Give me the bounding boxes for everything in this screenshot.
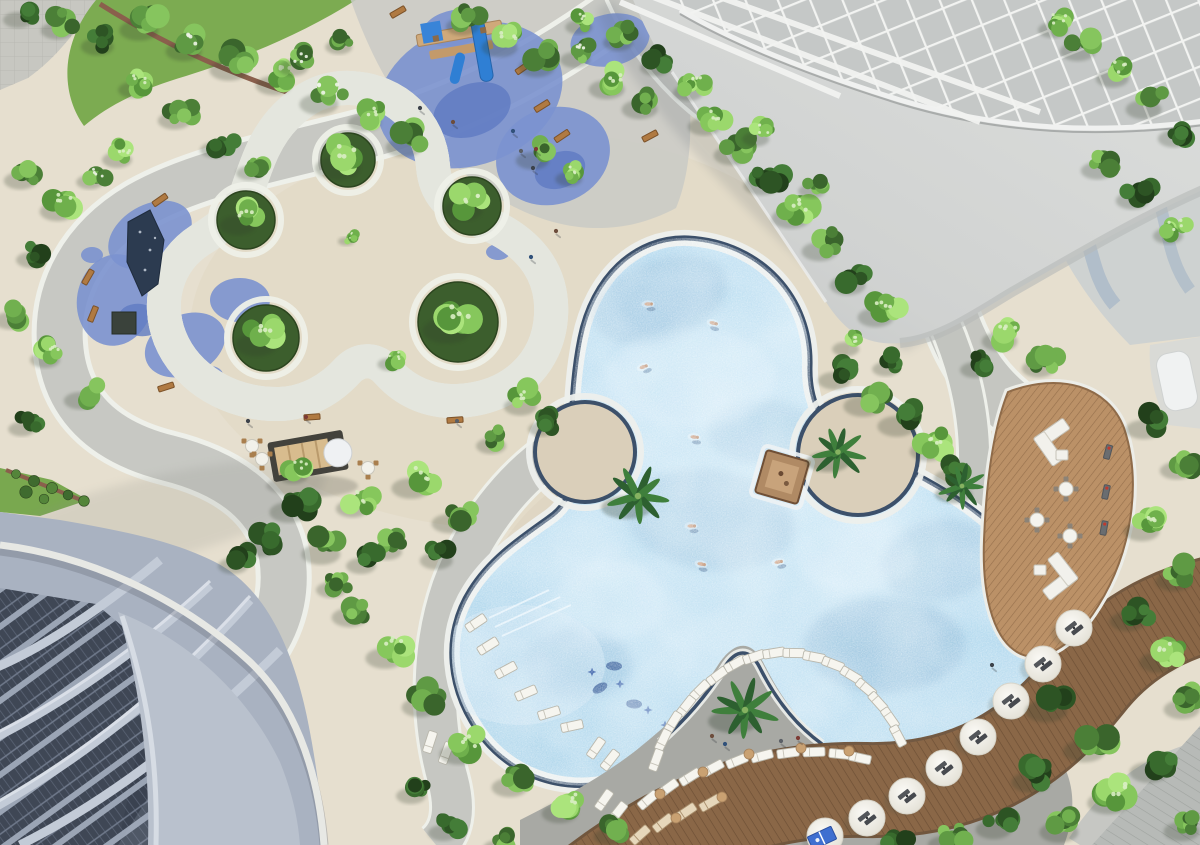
leaf-highlight xyxy=(258,328,262,332)
tree-canopy xyxy=(640,92,651,103)
tree-canopy xyxy=(883,346,900,363)
leaf-highlight xyxy=(500,35,504,39)
tree-canopy xyxy=(500,832,511,843)
leaf-highlight xyxy=(268,328,272,332)
person-dot xyxy=(511,129,515,133)
leaf-highlight xyxy=(797,198,801,202)
leaf-highlight xyxy=(998,325,1002,329)
tree-canopy xyxy=(307,525,329,547)
person-dot xyxy=(519,149,523,153)
tree-canopy xyxy=(538,42,555,59)
tree-canopy xyxy=(359,501,373,515)
palm-crown xyxy=(635,493,641,499)
cafe-chair xyxy=(1064,497,1069,502)
leaf-highlight xyxy=(53,345,56,348)
tree-canopy xyxy=(57,8,67,18)
cafe-chair xyxy=(1025,518,1030,523)
leaf-highlight xyxy=(305,462,308,465)
cafe-table xyxy=(1030,513,1044,527)
leaf-highlight xyxy=(464,200,468,204)
leaf-highlight xyxy=(571,796,575,800)
cafe-chair xyxy=(1045,518,1050,523)
person-dot xyxy=(451,120,455,124)
wood-chair xyxy=(268,452,273,457)
tree-canopy xyxy=(1165,753,1178,766)
round-table xyxy=(246,440,259,453)
wood-chair xyxy=(242,439,247,444)
tree-canopy xyxy=(356,599,368,611)
tree-canopy xyxy=(1138,180,1154,196)
leaf-highlight xyxy=(582,46,585,49)
tree-canopy xyxy=(434,542,446,554)
tree-canopy xyxy=(1139,604,1150,615)
tree-canopy xyxy=(1185,823,1197,835)
leaf-highlight xyxy=(293,60,296,63)
leaf-highlight xyxy=(711,116,715,120)
tree-canopy xyxy=(226,133,242,149)
tree-canopy xyxy=(606,27,623,44)
tree-canopy xyxy=(1155,86,1168,99)
tree-canopy xyxy=(565,172,574,181)
leaf-highlight xyxy=(1123,785,1127,789)
leaf-highlight xyxy=(709,110,713,114)
umbrella-pole xyxy=(1073,627,1075,629)
leaf-highlight xyxy=(1111,792,1115,796)
leaf-highlight xyxy=(259,324,263,328)
leaf-highlight xyxy=(520,397,524,401)
umbrella-pole xyxy=(866,817,868,819)
leaf-highlight xyxy=(758,124,761,127)
park-bench xyxy=(447,417,463,424)
wood-chair xyxy=(260,466,265,471)
tree-canopy xyxy=(89,377,105,393)
tree-canopy xyxy=(813,174,828,189)
leaf-highlight xyxy=(574,793,578,797)
play-cube xyxy=(112,312,136,334)
tree-canopy xyxy=(677,82,692,97)
tree-canopy xyxy=(409,471,430,492)
leaf-highlight xyxy=(853,336,856,339)
tree-canopy xyxy=(1080,27,1102,49)
leaf-highlight xyxy=(1013,326,1017,330)
person-dot xyxy=(723,742,727,746)
cafe-chair xyxy=(1035,528,1040,533)
leaf-highlight xyxy=(1117,70,1121,74)
leaf-highlight xyxy=(361,499,365,503)
tree-canopy xyxy=(839,369,850,380)
ottoman xyxy=(1056,450,1068,460)
wood-chair xyxy=(258,439,263,444)
tree-canopy xyxy=(641,51,660,70)
leaf-highlight xyxy=(608,76,612,80)
person-dot xyxy=(990,663,994,667)
side-table xyxy=(698,767,708,777)
tree-canopy xyxy=(1179,456,1198,475)
ottoman xyxy=(1034,565,1046,575)
side-table xyxy=(744,749,754,759)
tree-canopy xyxy=(226,550,246,570)
tree-canopy xyxy=(297,45,313,61)
leaf-highlight xyxy=(522,390,526,394)
tree-canopy xyxy=(640,103,651,114)
leaf-highlight xyxy=(450,314,455,319)
leaf-highlight xyxy=(1113,60,1117,64)
tree-canopy xyxy=(177,108,191,122)
round-table xyxy=(362,462,375,475)
tree-canopy xyxy=(1074,725,1099,750)
leaf-highlight xyxy=(424,476,428,480)
leaf-highlight xyxy=(611,79,615,83)
leaf-highlight xyxy=(1064,14,1067,17)
tree-canopy xyxy=(461,8,476,23)
leaf-highlight xyxy=(56,348,59,351)
tree-canopy xyxy=(209,139,222,152)
leaf-highlight xyxy=(397,351,400,354)
tree-canopy xyxy=(388,532,404,548)
person-dot xyxy=(531,166,535,170)
tree-canopy xyxy=(358,553,371,566)
tree-canopy xyxy=(513,768,535,790)
tree-canopy xyxy=(1045,816,1064,835)
tree-canopy xyxy=(606,820,626,840)
palm-crown xyxy=(742,707,748,713)
leaf-highlight xyxy=(193,42,197,46)
leaf-highlight xyxy=(391,636,395,640)
leaf-highlight xyxy=(466,314,471,319)
umbrella-pole xyxy=(943,767,945,769)
leaf-highlight xyxy=(1116,792,1120,796)
leaf-highlight xyxy=(69,196,73,200)
leaf-highlight xyxy=(570,799,574,803)
leaf-highlight xyxy=(250,210,254,214)
tree-canopy xyxy=(493,424,504,435)
cafe-chair xyxy=(1068,544,1073,549)
leaf-highlight xyxy=(1162,648,1166,652)
aerial-resort-render xyxy=(0,0,1200,845)
leaf-highlight xyxy=(1168,642,1172,646)
tree-canopy xyxy=(436,813,450,827)
leaf-highlight xyxy=(467,734,471,738)
leaf-highlight xyxy=(101,175,104,178)
leaf-highlight xyxy=(263,328,267,332)
bush xyxy=(63,490,73,500)
tree-canopy xyxy=(752,167,763,178)
umbrella-pole xyxy=(977,736,979,738)
leaf-highlight xyxy=(1147,516,1151,520)
tree-canopy xyxy=(30,252,40,262)
tree-canopy xyxy=(1121,605,1136,620)
leaf-highlight xyxy=(1180,224,1183,227)
leaf-highlight xyxy=(463,737,467,741)
leaf-highlight xyxy=(132,74,135,77)
side-table xyxy=(717,792,727,802)
leaf-highlight xyxy=(374,113,378,117)
leaf-highlight xyxy=(352,147,357,152)
leaf-highlight xyxy=(118,150,121,153)
leaf-highlight xyxy=(349,237,351,239)
bush xyxy=(46,482,57,493)
bush xyxy=(28,475,39,486)
leaf-highlight xyxy=(804,208,808,212)
tree-canopy xyxy=(835,271,858,294)
leaf-highlight xyxy=(186,33,190,37)
leaf-highlight xyxy=(879,300,883,304)
leaf-highlight xyxy=(499,31,503,35)
tree-canopy xyxy=(501,773,515,787)
leaf-highlight xyxy=(758,131,761,134)
leaf-highlight xyxy=(1052,21,1055,24)
leaf-highlight xyxy=(884,304,888,308)
tree-canopy xyxy=(620,20,634,34)
leaf-highlight xyxy=(1052,13,1055,16)
person-dot xyxy=(710,734,714,738)
tree-canopy xyxy=(1150,410,1164,424)
leaf-highlight xyxy=(305,55,308,58)
cafe-chair xyxy=(1064,477,1069,482)
wood-chair xyxy=(252,452,257,457)
bush xyxy=(20,486,32,498)
tree-canopy xyxy=(826,226,838,238)
leaf-highlight xyxy=(414,466,418,470)
tree-canopy xyxy=(146,4,170,28)
leaf-highlight xyxy=(699,76,702,79)
tree-canopy xyxy=(390,121,413,144)
cafe-chair xyxy=(1074,487,1079,492)
wood-chair xyxy=(366,475,371,480)
play-tower xyxy=(420,21,443,44)
tree-canopy xyxy=(993,322,1015,344)
tree-canopy xyxy=(1064,34,1081,51)
tree-canopy xyxy=(1169,652,1185,668)
leaf-highlight xyxy=(300,467,303,470)
person-dot xyxy=(554,229,558,233)
leaf-highlight xyxy=(56,199,60,203)
tree-canopy xyxy=(449,818,463,832)
tree-canopy xyxy=(1035,345,1056,366)
leaf-highlight xyxy=(300,460,303,463)
leaf-highlight xyxy=(717,117,721,121)
leaf-highlight xyxy=(1123,62,1127,66)
leaf-highlight xyxy=(695,76,698,79)
leaf-highlight xyxy=(449,304,454,309)
tree-canopy xyxy=(96,25,109,38)
leaf-highlight xyxy=(126,151,129,154)
leaf-highlight xyxy=(928,437,932,441)
tree-canopy xyxy=(760,124,773,137)
leaf-highlight xyxy=(476,194,480,198)
leaf-highlight xyxy=(691,77,694,80)
tree-canopy xyxy=(30,421,41,432)
leaf-highlight xyxy=(238,214,242,218)
tree-canopy xyxy=(264,318,285,339)
person-dot xyxy=(304,415,308,419)
bush xyxy=(79,496,90,507)
leaf-highlight xyxy=(514,36,518,40)
cafe-chair xyxy=(1035,508,1040,513)
leaf-highlight xyxy=(888,305,892,309)
tree-canopy xyxy=(342,582,353,593)
cafe-chair xyxy=(1058,534,1063,539)
person-dot xyxy=(246,419,250,423)
leaf-highlight xyxy=(582,15,585,18)
leaf-highlight xyxy=(350,233,352,235)
tree-canopy xyxy=(244,162,259,177)
tree-canopy xyxy=(332,29,347,44)
person-dot xyxy=(796,736,800,740)
tree-canopy xyxy=(1185,810,1200,825)
tree-canopy xyxy=(819,244,833,258)
leaf-highlight xyxy=(399,639,403,643)
leaf-highlight xyxy=(569,166,572,169)
tree-canopy xyxy=(411,135,428,152)
cafe-table xyxy=(1059,482,1073,496)
person-dot xyxy=(418,106,422,110)
tree-canopy xyxy=(394,643,406,655)
tree-canopy xyxy=(337,88,349,100)
tree-canopy xyxy=(281,495,303,517)
tree-canopy xyxy=(982,815,994,827)
side-table xyxy=(671,813,681,823)
leaf-highlight xyxy=(337,153,342,158)
tree-canopy xyxy=(450,510,472,532)
person-dot xyxy=(455,419,459,423)
tree-canopy xyxy=(262,531,280,549)
tree-canopy xyxy=(4,299,22,317)
tree-canopy xyxy=(329,577,343,591)
umbrella-pole xyxy=(1010,700,1012,702)
tree-canopy xyxy=(346,608,357,619)
tree-canopy xyxy=(96,36,108,48)
tree-canopy xyxy=(351,235,358,242)
wood-chair xyxy=(374,461,379,466)
tree-canopy xyxy=(1172,692,1185,705)
tree-canopy xyxy=(64,19,80,35)
leaf-highlight xyxy=(619,78,623,82)
tree-canopy xyxy=(96,169,113,186)
tree-canopy xyxy=(21,3,35,17)
leaf-highlight xyxy=(1179,219,1182,222)
leaf-highlight xyxy=(56,193,60,197)
tree-canopy xyxy=(970,351,981,362)
aerial-render-stage xyxy=(0,0,1200,845)
tree-canopy xyxy=(239,199,258,218)
leaf-highlight xyxy=(573,170,576,173)
leaf-highlight xyxy=(1153,519,1157,523)
tree-canopy xyxy=(1036,685,1062,711)
leaf-highlight xyxy=(473,744,477,748)
tree-canopy xyxy=(1025,757,1045,777)
leaf-highlight xyxy=(519,393,523,397)
leaf-highlight xyxy=(143,77,146,80)
leaf-highlight xyxy=(939,440,943,444)
umbrella-pole xyxy=(1042,663,1044,665)
leaf-highlight xyxy=(457,311,462,316)
tree-canopy xyxy=(237,56,254,73)
tree-canopy xyxy=(860,394,879,413)
leaf-highlight xyxy=(576,45,579,48)
tree-canopy xyxy=(340,494,360,514)
sun-lounger xyxy=(783,648,805,657)
leaf-highlight xyxy=(372,107,376,111)
leaf-highlight xyxy=(619,73,623,77)
leaf-highlight xyxy=(1158,646,1162,650)
tree-canopy xyxy=(539,419,552,432)
leaf-highlight xyxy=(581,17,584,20)
umbrella-pole xyxy=(906,795,908,797)
pool-platform xyxy=(750,445,814,509)
tree-canopy xyxy=(802,178,813,189)
leaf-highlight xyxy=(766,131,769,134)
tree-canopy xyxy=(851,334,863,346)
side-table xyxy=(844,746,854,756)
tree-canopy xyxy=(540,143,550,153)
tree-canopy xyxy=(437,307,461,331)
leaf-highlight xyxy=(875,301,879,305)
lounger-bed xyxy=(783,648,805,657)
tree-canopy xyxy=(114,139,125,150)
tree-canopy xyxy=(898,403,916,421)
tree-canopy xyxy=(19,160,37,178)
tree-canopy xyxy=(1100,159,1119,178)
leaf-highlight xyxy=(388,355,391,358)
round-table xyxy=(256,453,269,466)
leaf-highlight xyxy=(143,81,146,84)
bush xyxy=(12,470,21,479)
leaf-highlight xyxy=(1003,326,1007,330)
leaf-highlight xyxy=(321,91,325,95)
tree-canopy xyxy=(1119,184,1135,200)
leaf-highlight xyxy=(355,490,359,494)
leaf-highlight xyxy=(337,144,342,149)
wood-chair xyxy=(358,461,363,466)
tree-canopy xyxy=(1174,126,1188,140)
rubber-mat xyxy=(81,247,103,263)
tree-canopy xyxy=(1062,809,1076,823)
leaf-highlight xyxy=(792,204,796,208)
person-dot xyxy=(529,255,533,259)
side-table xyxy=(655,789,665,799)
tree-canopy xyxy=(696,75,712,91)
leaf-highlight xyxy=(1167,221,1170,224)
tree-canopy xyxy=(759,171,782,194)
tree-canopy xyxy=(719,139,735,155)
leaf-highlight xyxy=(1172,228,1175,231)
tree-canopy xyxy=(1172,552,1195,575)
tree-canopy xyxy=(1003,817,1018,832)
tree-canopy xyxy=(1106,792,1125,811)
palm-crown xyxy=(835,449,841,455)
leaf-highlight xyxy=(397,355,400,358)
leaf-highlight xyxy=(384,642,388,646)
tree-canopy xyxy=(1159,224,1174,239)
tree-canopy xyxy=(423,694,445,716)
leaf-highlight xyxy=(367,113,371,117)
tree-canopy xyxy=(408,778,422,792)
leaf-highlight xyxy=(317,83,321,87)
leaf-highlight xyxy=(579,13,582,16)
leaf-highlight xyxy=(94,173,97,176)
person-dot xyxy=(534,147,538,151)
tree-canopy xyxy=(126,74,138,86)
tree-canopy xyxy=(935,427,949,441)
tree-canopy xyxy=(979,360,992,373)
leaf-highlight xyxy=(335,83,339,87)
bush xyxy=(39,494,49,504)
tree-canopy xyxy=(1184,688,1200,704)
cafe-chair xyxy=(1068,524,1073,529)
leaf-highlight xyxy=(300,60,303,63)
tree-canopy xyxy=(294,457,312,475)
